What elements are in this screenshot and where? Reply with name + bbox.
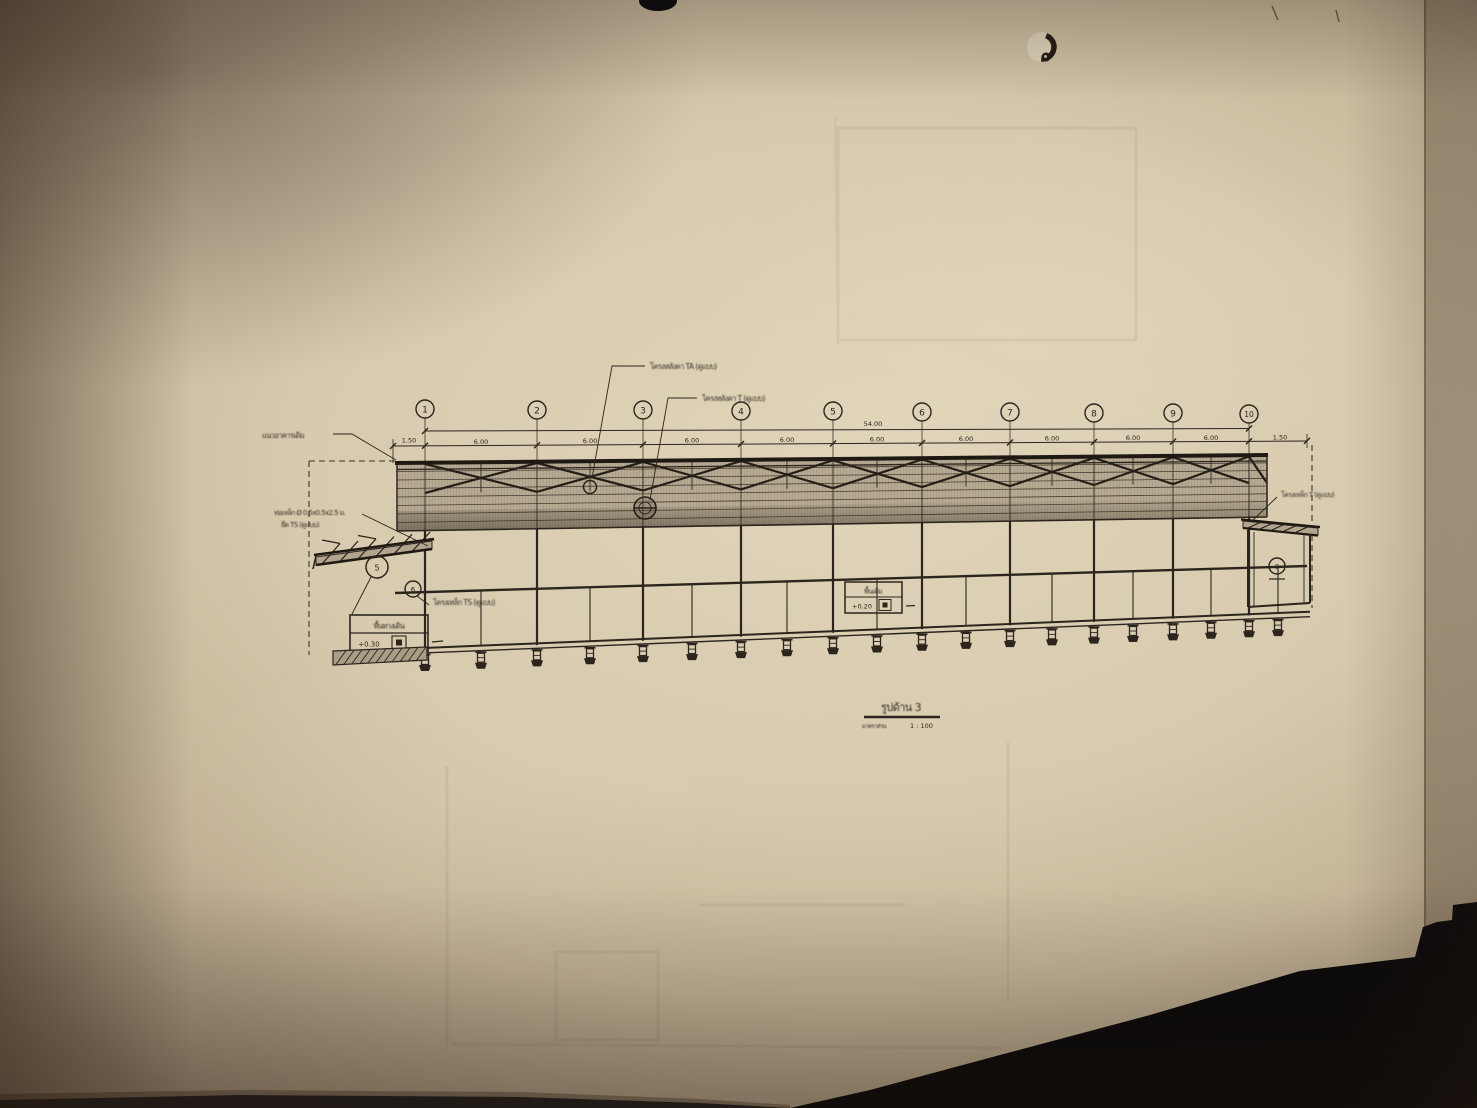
bottom-edge-shadow	[0, 1090, 790, 1108]
photo-extras	[0, 0, 1477, 1108]
photo-of-blueprint: 1 2 3 4 5 6 7 8 9 10	[0, 0, 1477, 1108]
paper-marks	[1272, 6, 1339, 22]
punch-hole	[1027, 32, 1058, 63]
table-background-right	[790, 902, 1477, 1108]
punch-notch	[639, 0, 677, 11]
